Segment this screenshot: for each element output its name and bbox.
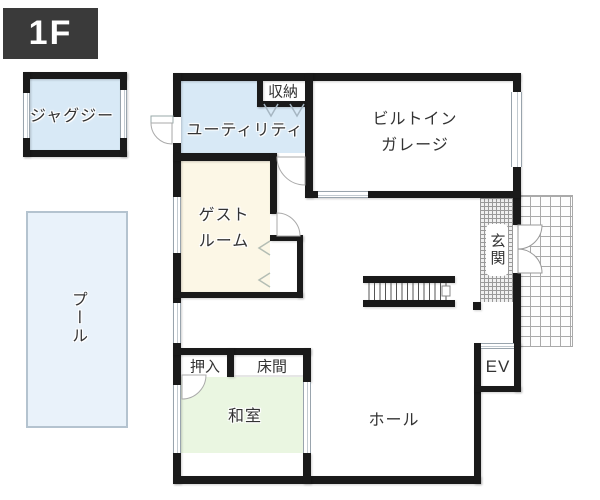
label-entrance: 玄関 xyxy=(487,233,508,267)
label-guest-room: ゲスト ルーム xyxy=(159,203,289,255)
wall xyxy=(514,343,521,392)
wall xyxy=(297,235,303,298)
garage-opening xyxy=(318,191,368,198)
wall xyxy=(173,292,303,298)
label-pool: プール xyxy=(65,291,89,345)
wall xyxy=(303,348,311,382)
wall xyxy=(173,348,311,355)
floor-badge: 1F xyxy=(3,8,98,59)
label-japanese-room: 和室 xyxy=(228,402,262,426)
door-leaf xyxy=(151,116,173,123)
wall xyxy=(257,101,305,107)
wall xyxy=(474,386,521,392)
wall xyxy=(513,273,521,347)
label-elevator: EV xyxy=(486,357,511,377)
stairs-up-marker xyxy=(442,286,450,296)
label-storage: 収納 xyxy=(268,81,298,102)
stairs-treads xyxy=(369,283,446,300)
floor-plan-1f: 1F xyxy=(0,0,600,500)
label-entrance-box: 玄関 xyxy=(486,224,508,276)
label-hall: ホール xyxy=(368,406,419,430)
door-opening xyxy=(173,117,181,143)
wall xyxy=(305,73,313,198)
window xyxy=(173,303,181,343)
wall xyxy=(173,73,520,81)
elevator-sliding-door xyxy=(481,343,514,349)
door-arc xyxy=(151,123,172,144)
label-garage-line1: ビルトイン xyxy=(372,111,457,128)
stairs-wall xyxy=(363,276,455,283)
label-guest-line2: ルーム xyxy=(199,233,250,250)
label-jacuzzi: ジャグジー xyxy=(30,102,114,126)
label-guest-line1: ゲスト xyxy=(198,207,249,224)
window xyxy=(120,90,127,138)
sliding-door xyxy=(303,382,311,453)
wall xyxy=(23,150,127,157)
wall xyxy=(23,72,127,79)
sliding-door xyxy=(173,385,181,453)
label-garage: ビルトイン ガレージ xyxy=(350,107,480,159)
label-utility: ユーティリティ xyxy=(186,116,303,140)
label-oshiire: 押入 xyxy=(190,356,220,377)
stairs-wall xyxy=(363,300,455,307)
wall xyxy=(227,348,234,377)
window xyxy=(511,92,522,167)
wall xyxy=(173,153,277,161)
wall xyxy=(303,453,311,484)
door-arc xyxy=(277,157,305,185)
floor-badge-label: 1F xyxy=(29,14,73,53)
wall xyxy=(173,476,481,484)
entrance-porch-grid xyxy=(519,195,573,347)
label-garage-line2: ガレージ xyxy=(381,137,449,154)
wall xyxy=(474,343,481,484)
wall xyxy=(473,302,481,310)
label-tokonoma: 床間 xyxy=(257,356,287,377)
